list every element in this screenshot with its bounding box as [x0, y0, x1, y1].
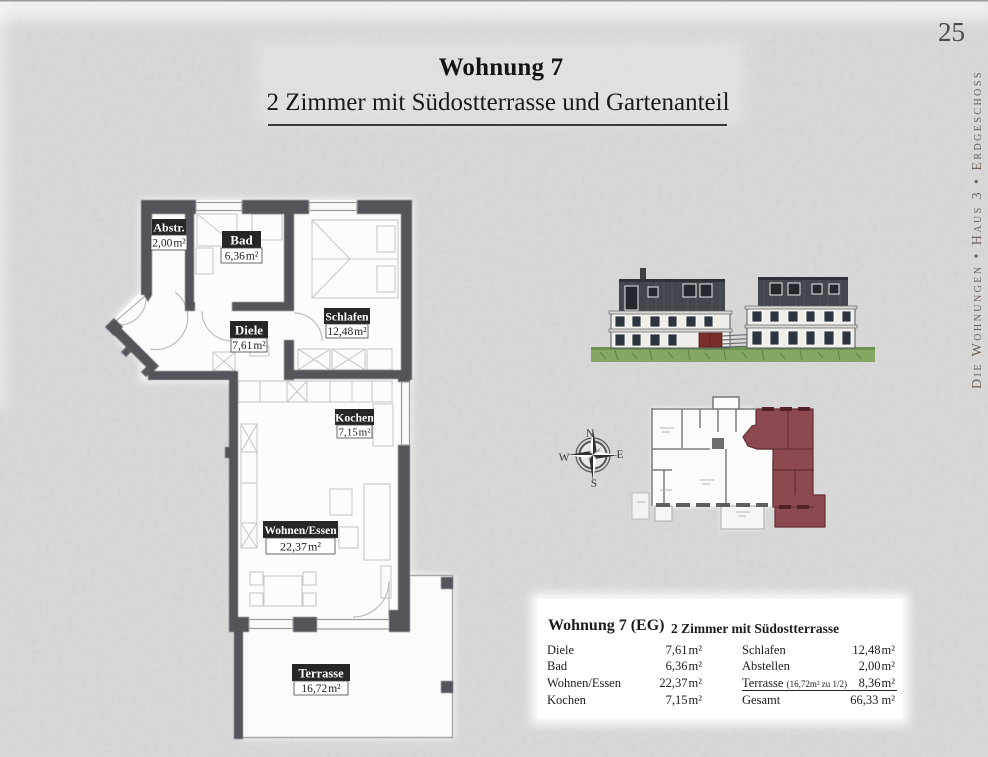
svg-text:7,15 m²: 7,15 m²: [338, 427, 371, 439]
svg-text:Bad: Bad: [230, 233, 253, 248]
svg-text:S: S: [591, 478, 597, 490]
svg-text:Wohnen/Essen: Wohnen/Essen: [264, 525, 337, 537]
svg-text:W: W: [559, 452, 570, 464]
svg-text:Kochen: Kochen: [335, 411, 374, 425]
svg-text:Abstr.: Abstr.: [153, 221, 184, 235]
svg-text:22,37 m²: 22,37 m²: [280, 540, 321, 554]
svg-text:Schlafen: Schlafen: [325, 310, 369, 324]
svg-text:7,61 m²: 7,61 m²: [232, 340, 266, 352]
svg-text:2,00 m²: 2,00 m²: [152, 238, 186, 250]
svg-text:E: E: [616, 449, 623, 461]
svg-text:Diele: Diele: [235, 323, 263, 338]
svg-text:6,36 m²: 6,36 m²: [225, 251, 259, 263]
svg-text:12,48 m²: 12,48 m²: [327, 326, 367, 338]
svg-text:Terrasse: Terrasse: [298, 667, 344, 681]
svg-text:N: N: [586, 428, 595, 440]
svg-text:16,72 m²: 16,72 m²: [301, 683, 341, 695]
